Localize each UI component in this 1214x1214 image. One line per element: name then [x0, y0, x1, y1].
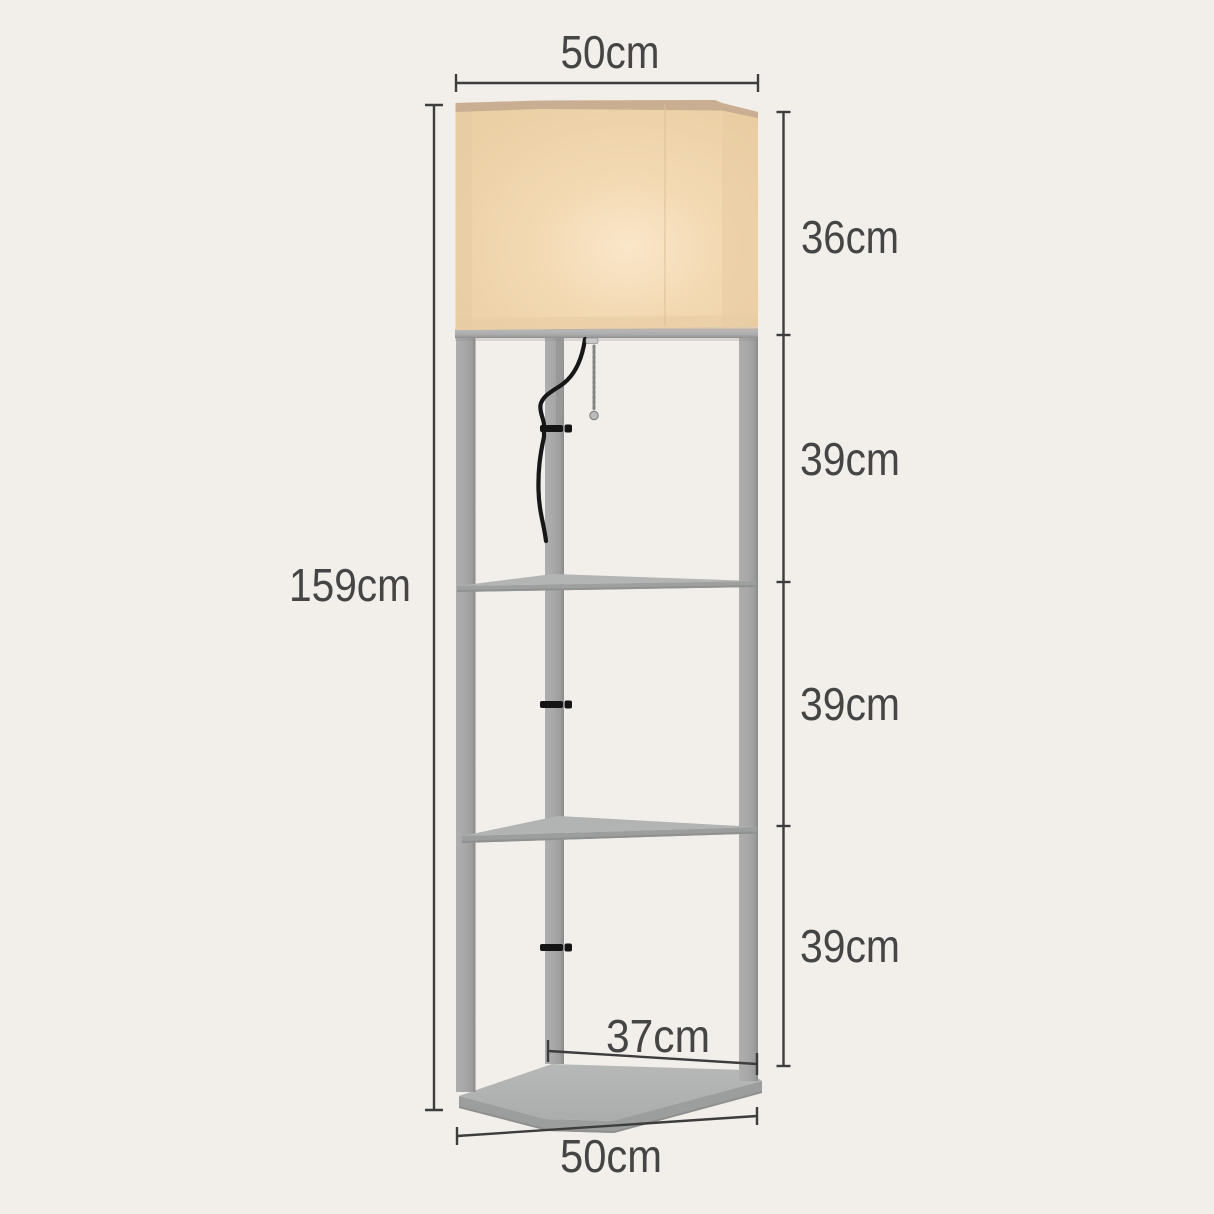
svg-text:39cm: 39cm: [800, 678, 900, 730]
svg-text:50cm: 50cm: [560, 1130, 662, 1182]
svg-text:39cm: 39cm: [800, 433, 900, 485]
svg-text:36cm: 36cm: [801, 211, 899, 263]
svg-text:37cm: 37cm: [606, 1010, 710, 1062]
svg-text:159cm: 159cm: [289, 559, 411, 611]
svg-text:50cm: 50cm: [561, 26, 660, 78]
svg-text:39cm: 39cm: [800, 920, 900, 972]
